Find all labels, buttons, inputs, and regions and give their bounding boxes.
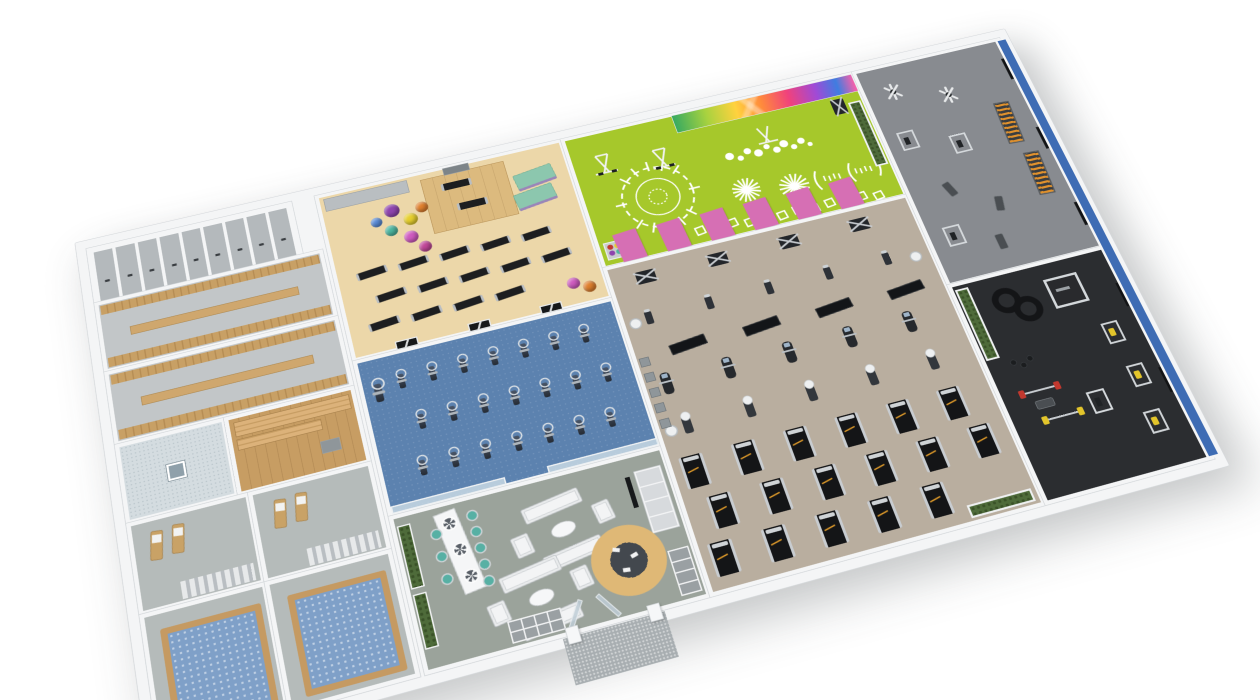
treadmill	[834, 412, 869, 448]
elliptical-trainer	[901, 310, 919, 333]
barbell-red-plates	[1020, 384, 1059, 396]
media-screen	[815, 297, 854, 318]
upright-bike	[881, 252, 893, 265]
spin-bike	[580, 328, 590, 343]
functional-trainer	[848, 216, 871, 232]
bar-stool	[469, 525, 484, 539]
bench-cube	[639, 357, 652, 368]
media-screen	[887, 279, 926, 300]
kettlebell	[1009, 359, 1018, 366]
spin-bike	[459, 358, 469, 373]
treadmill	[915, 436, 951, 473]
treadmill	[783, 425, 818, 462]
yoga-mat	[375, 286, 408, 303]
elliptical-trainer	[720, 356, 737, 379]
spin-bike	[417, 413, 427, 429]
floor-plan-render: 3D perspective rendering of a fitness cl…	[0, 0, 1260, 700]
lounger	[172, 523, 185, 554]
yoga-mat	[520, 225, 552, 241]
wooden-platform	[420, 161, 519, 234]
bar-stool	[440, 572, 455, 587]
spin-bike	[397, 373, 407, 389]
kettlebell	[1019, 361, 1028, 368]
spin-bike	[541, 382, 551, 398]
spin-bike	[575, 419, 585, 435]
treadmill	[966, 422, 1002, 459]
lat-pulldown-machine	[948, 132, 973, 154]
elliptical-trainer	[841, 325, 859, 348]
weight-bench	[1034, 397, 1056, 410]
exercise-bike	[925, 352, 940, 370]
cable-crossover	[935, 84, 962, 105]
exercise-ball	[582, 279, 598, 293]
smith-machine	[1086, 388, 1114, 414]
upright-bike	[644, 311, 655, 325]
yoga-mat	[410, 305, 443, 322]
bike-wheel-decor	[440, 514, 460, 533]
treadmill	[678, 452, 712, 489]
spin-bike	[428, 366, 438, 381]
yoga-mat	[452, 295, 485, 312]
lat-pulldown-machine	[896, 129, 921, 151]
media-screen	[668, 334, 707, 356]
exercise-ball	[370, 217, 384, 229]
exercise-bike	[680, 415, 694, 434]
treadmill	[707, 538, 742, 577]
lounger	[295, 492, 309, 522]
yoga-mat	[416, 276, 449, 293]
exercise-ball	[383, 203, 401, 219]
upright-bike	[763, 281, 775, 295]
spin-bike	[448, 405, 458, 421]
floor-fan	[908, 250, 924, 263]
plate-loaded-machine	[1100, 320, 1126, 345]
spin-bike	[550, 335, 560, 350]
treadmill	[919, 481, 955, 519]
treadmill	[706, 491, 741, 529]
exercise-ball	[402, 212, 419, 227]
spin-bike	[544, 427, 554, 443]
bar-stool	[473, 541, 488, 555]
yoga-mat	[356, 264, 389, 281]
functional-trainer	[706, 251, 729, 267]
medicine-ball	[607, 244, 614, 250]
exercise-bike	[865, 367, 880, 385]
yoga-mat	[368, 315, 402, 333]
spin-bike	[606, 411, 617, 427]
cable-crossover	[880, 82, 907, 103]
exercise-ball	[384, 224, 399, 238]
yoga-mat	[499, 257, 532, 274]
spin-bike	[510, 390, 520, 406]
spin-bike	[418, 459, 428, 475]
bench-cube	[654, 402, 667, 413]
seated-machine	[942, 224, 968, 247]
changing-cubicle	[94, 248, 120, 301]
exercise-ball	[565, 276, 581, 290]
floor-fan	[628, 317, 644, 331]
treadmill	[863, 450, 899, 487]
yoga-mat	[540, 247, 573, 264]
yoga-mat	[397, 255, 430, 272]
weight-bench	[941, 181, 959, 197]
treadmill	[885, 399, 920, 435]
upright-bike	[822, 266, 834, 280]
kettlebell	[1025, 355, 1034, 362]
plate-loaded-machine	[1143, 408, 1170, 434]
dumbbell-rack	[1023, 150, 1056, 195]
sauna-stones	[320, 437, 342, 454]
hot-tub	[287, 570, 408, 698]
spin-bike	[479, 398, 489, 414]
dumbbell-rack	[993, 101, 1025, 144]
treadmill	[867, 495, 903, 533]
treadmill	[811, 463, 846, 501]
yoga-mat	[494, 284, 527, 301]
power-cage	[1043, 272, 1090, 309]
exercise-bike	[804, 383, 819, 402]
medicine-ball	[609, 250, 616, 256]
hot-tub	[160, 603, 279, 700]
bike-wheel-decor	[451, 540, 471, 559]
platform-mat	[456, 197, 488, 211]
lounger	[274, 498, 287, 529]
yoga-mat	[479, 235, 511, 252]
exercise-ball	[418, 239, 434, 253]
spin-bike	[513, 435, 523, 451]
spin-bike	[489, 350, 499, 365]
plate-loaded-machine	[1126, 362, 1153, 387]
treadmill	[760, 524, 796, 563]
elliptical-trainer	[781, 341, 799, 364]
platform-mat	[440, 178, 472, 192]
spin-bike	[571, 374, 581, 390]
spin-bike	[602, 367, 612, 382]
media-screen	[742, 315, 781, 336]
functional-trainer	[778, 234, 801, 250]
bench-cube	[649, 387, 662, 398]
upright-bike	[704, 296, 715, 310]
building	[85, 37, 1217, 700]
treadmill	[936, 385, 971, 421]
elliptical-trainer	[659, 372, 676, 396]
lounger	[150, 530, 163, 561]
yoga-mat	[438, 245, 471, 262]
treadmill	[731, 439, 765, 476]
exercise-ball	[403, 229, 420, 244]
bench-cube	[644, 372, 657, 383]
barbell-yellow-plates	[1043, 410, 1082, 422]
weight-bench	[994, 233, 1010, 250]
floor-drain	[166, 460, 187, 481]
instructor-spin-bike	[373, 383, 385, 403]
spin-bike	[450, 451, 460, 467]
treadmill	[814, 509, 850, 548]
bar-stool	[465, 509, 480, 523]
exercise-bike	[743, 399, 758, 418]
spin-bike	[481, 443, 491, 459]
weight-bench	[993, 196, 1005, 211]
yoga-mat	[458, 266, 491, 283]
treadmill	[759, 477, 794, 515]
functional-trainer	[634, 268, 657, 285]
spin-bike	[519, 343, 529, 358]
bike-wheel-decor	[462, 566, 482, 585]
